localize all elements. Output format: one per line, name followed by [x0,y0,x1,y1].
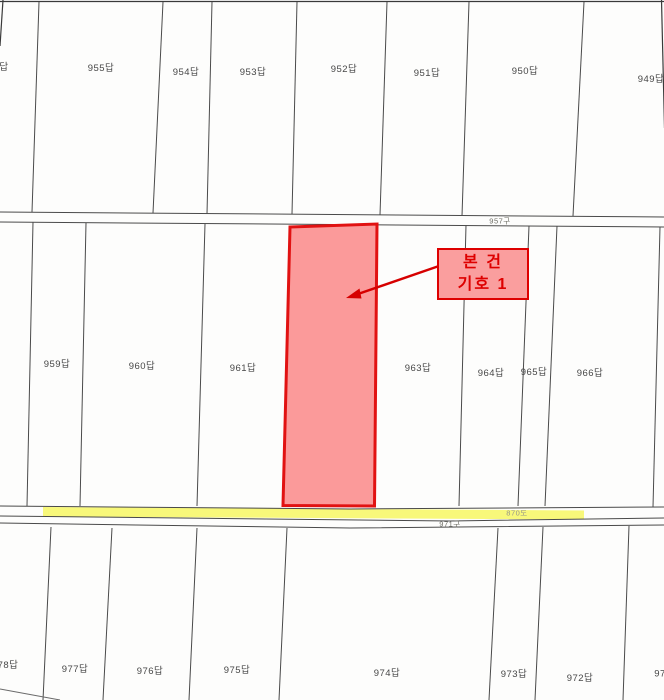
boundary-977-976 [103,528,112,700]
boundary-954-953 [207,2,212,214]
boundary-955-west [32,2,39,212]
waterway-971-bottom-line [0,523,664,528]
subject-annotation-box: 본 건 기호 1 [437,248,529,300]
parcel-label-949: 949답 [638,71,664,85]
parcel-label-976: 976답 [137,663,164,677]
waterway-957-label: 957구 [489,216,510,227]
boundary-966-east [653,227,660,507]
boundary-955-954 [153,2,163,213]
parcel-label-952: 952답 [331,61,358,75]
parcel-label-963: 963답 [405,360,432,374]
boundary-974-973 [489,528,498,700]
annotation-line-1: 본 건 [463,252,503,274]
parcel-label-959: 959답 [44,356,71,370]
map-canvas [0,0,664,700]
parcel-label-966: 966답 [577,365,604,379]
boundary-976-975 [189,528,197,700]
highlighted-parcel [283,224,377,506]
boundary-bottom-left-exit [0,689,60,700]
parcel-label-974: 974답 [374,665,401,679]
boundary-951-950 [462,2,469,216]
parcel-label-975: 975답 [224,662,251,676]
parcel-label-965: 965답 [521,364,548,378]
boundary-953-952 [292,2,297,214]
boundary-960-961 [197,224,205,506]
parcel-label-964: 964답 [478,365,505,379]
annotation-line-2: 기호 1 [458,274,509,296]
parcel-label-977: 977답 [62,661,89,675]
parcel-label-960: 960답 [129,358,156,372]
waterway-957-top-line [0,212,664,217]
parcel-label-partial-978: 78답 [0,657,18,671]
bottom-row-boundaries [0,526,629,700]
boundary-975-974 [279,528,287,700]
parcel-label-951: 951답 [414,65,441,79]
boundary-977-west [43,527,51,700]
boundary-952-951 [380,2,387,215]
top-row-boundaries [32,2,584,216]
parcel-label-972: 972답 [567,670,594,684]
waterway-971-label: 971구 [439,519,460,530]
parcel-label-955: 955답 [88,60,115,74]
boundary-973-972 [535,527,543,700]
parcel-label-954: 954답 [173,64,200,78]
cadastral-map: 답 955답 954답 953답 952답 951답 950답 949답 957… [0,0,664,700]
boundary-972-east [623,526,629,700]
boundary-left-top-exit [0,0,3,46]
parcel-label-partial-east: 97 [654,669,664,680]
road-870-label: 870도 [506,508,527,519]
boundary-959-960 [80,223,86,506]
boundary-959-west [27,222,33,506]
parcel-label-partial-west: 답 [0,59,9,73]
parcel-label-973: 973답 [501,666,528,680]
parcel-label-950: 950답 [512,63,539,77]
parcel-label-953: 953답 [240,64,267,78]
boundary-950-949 [573,2,584,216]
parcel-label-961: 961답 [230,360,257,374]
